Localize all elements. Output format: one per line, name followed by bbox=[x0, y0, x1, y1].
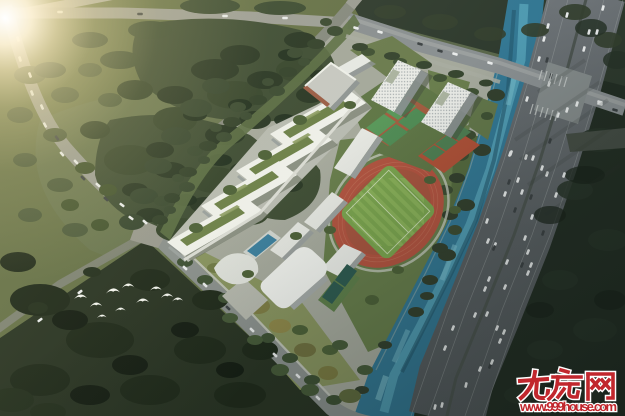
svg-text:www.999house.com: www.999house.com bbox=[519, 399, 617, 414]
